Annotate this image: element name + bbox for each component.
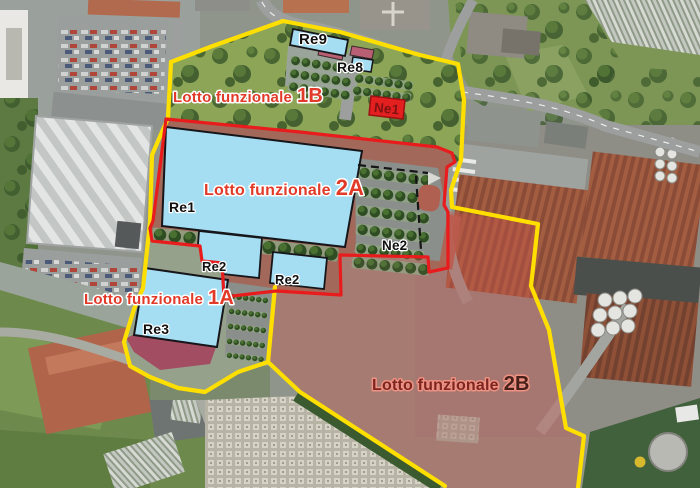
label-lotto-1a: Lotto funzionale1A: [84, 287, 234, 309]
label-re1: Re1: [169, 199, 195, 215]
map-root: Lotto funzionale1B Lotto funzionale2A Lo…: [0, 0, 700, 488]
label-ne1: Ne1: [373, 100, 400, 118]
label-re2-left: Re2: [202, 259, 226, 274]
label-re2-right: Re2: [275, 272, 299, 287]
masterplan-map: Lotto funzionale1B Lotto funzionale2A Lo…: [0, 0, 700, 488]
label-lotto-2b: Lotto funzionale2B: [372, 373, 530, 395]
label-ne2: Ne2: [382, 238, 407, 253]
label-re9: Re9: [299, 31, 327, 48]
label-re3: Re3: [143, 321, 169, 337]
label-re8: Re8: [337, 59, 363, 75]
label-lotto-1b: Lotto funzionale1B: [173, 85, 323, 107]
